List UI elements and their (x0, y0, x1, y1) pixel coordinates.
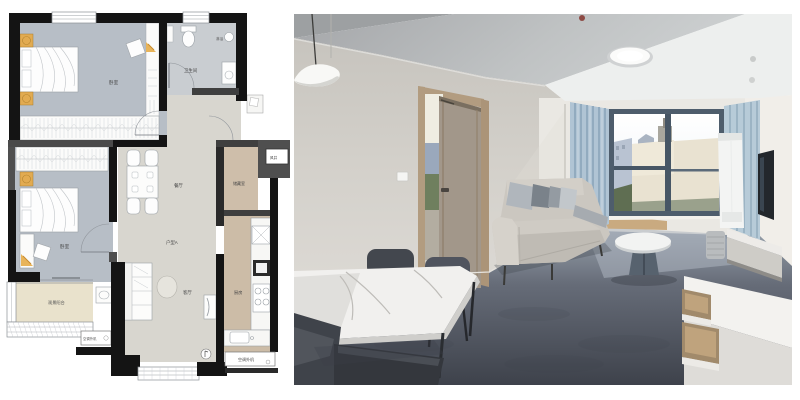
svg-text:客厅: 客厅 (183, 289, 192, 296)
svg-text:卧室: 卧室 (109, 79, 119, 86)
svg-text:厨房: 厨房 (234, 289, 242, 296)
svg-text:风井: 风井 (270, 155, 278, 160)
svg-text:户型A: 户型A (166, 239, 178, 246)
svg-text:卫生间: 卫生间 (184, 67, 197, 74)
svg-text:储藏室: 储藏室 (233, 180, 245, 186)
svg-text:餐厅: 餐厅 (174, 182, 183, 189)
svg-text:空调外机: 空调外机 (83, 336, 97, 341)
svg-text:卧室: 卧室 (60, 243, 70, 250)
svg-text:观景阳台: 观景阳台 (48, 299, 65, 306)
svg-text:淋浴: 淋浴 (216, 36, 224, 41)
svg-text:空调外机: 空调外机 (238, 356, 254, 362)
